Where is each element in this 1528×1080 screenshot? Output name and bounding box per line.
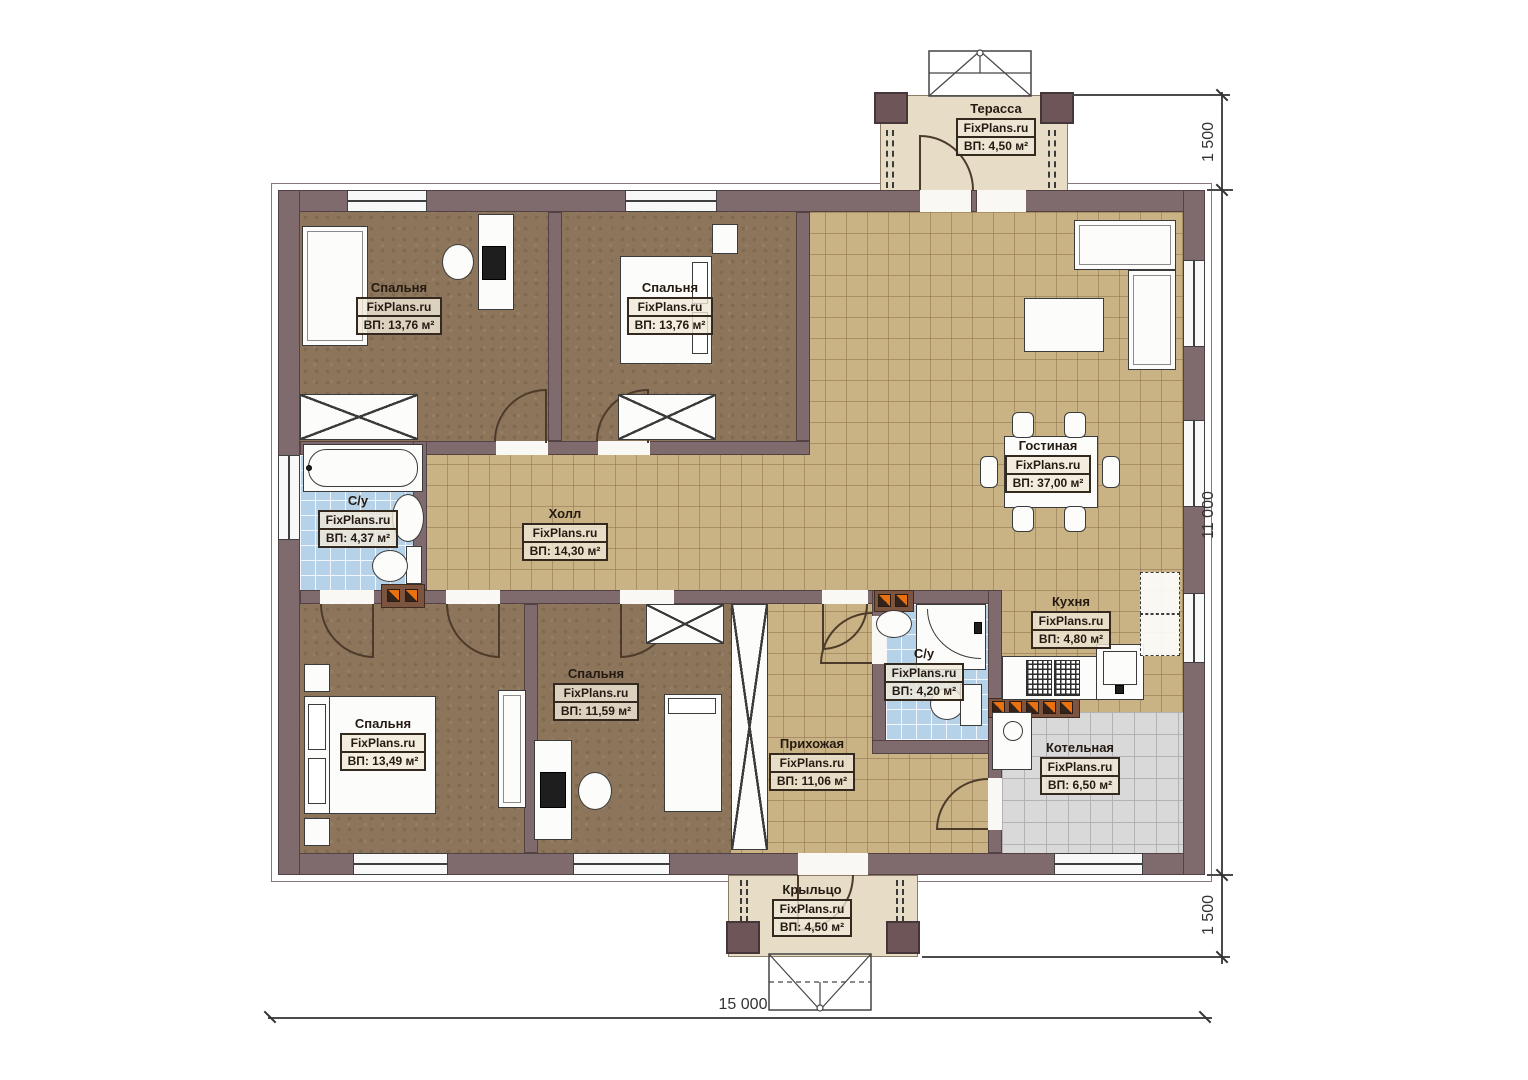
- wardrobe-symbol: [646, 604, 724, 644]
- room-name: Спальня: [568, 666, 624, 681]
- room-name: Холл: [549, 506, 582, 521]
- vent-marker-icon: [1043, 701, 1056, 714]
- door-leaf: [820, 662, 872, 664]
- closet-symbol: [731, 604, 768, 850]
- front-door-opening: [798, 853, 868, 875]
- room-label-boiler: Котельная FixPlans.ru ВП: 6,50 м²: [1010, 740, 1150, 795]
- shower-head-icon: [974, 622, 982, 634]
- chair-symbol: [1012, 506, 1034, 532]
- room-label-bath1: С/у FixPlans.ru ВП: 4,37 м²: [308, 493, 408, 548]
- wall-bedroom2-living: [796, 212, 810, 441]
- room-name: Кухня: [1052, 594, 1090, 609]
- room-label-porch: Крыльцо FixPlans.ru ВП: 4,50 м²: [752, 882, 872, 937]
- room-area: ВП: 13,49 м²: [342, 751, 425, 769]
- kitchen-sink-symbol: [1096, 644, 1144, 700]
- room-label-entry: Прихожая FixPlans.ru ВП: 11,06 м²: [752, 736, 872, 791]
- porch-railing: [896, 880, 904, 922]
- room-name: С/у: [348, 493, 368, 508]
- room-area: ВП: 4,37 м²: [320, 528, 397, 546]
- dimension-line-right: [1221, 92, 1223, 964]
- brand-watermark: FixPlans.ru: [342, 735, 425, 751]
- room-area: ВП: 4,80 м²: [1033, 629, 1110, 647]
- dimension-extension: [922, 956, 1230, 958]
- room-label-bedroom2: Спальня FixPlans.ru ВП: 13,76 м²: [605, 280, 735, 335]
- room-name: Спальня: [642, 280, 698, 295]
- faucet-icon: [306, 465, 312, 471]
- terrace-stairs-icon: [928, 50, 1032, 97]
- door-opening: [320, 590, 374, 604]
- dimension-value-porch-depth: 1 500: [1200, 880, 1220, 950]
- upper-cabinet-symbol: [1140, 572, 1180, 614]
- chair-symbol: [1064, 506, 1086, 532]
- window: [1054, 853, 1143, 875]
- floor-plan-canvas: Терасса FixPlans.ru ВП: 4,50 м² Спальня …: [0, 0, 1528, 1080]
- brand-watermark: FixPlans.ru: [629, 299, 712, 315]
- room-name: Котельная: [1046, 740, 1114, 755]
- dimension-value-house-depth: 11 000: [1200, 477, 1220, 553]
- door-leaf: [498, 604, 500, 658]
- room-name: Спальня: [371, 280, 427, 295]
- room-name: Крыльцо: [782, 882, 841, 897]
- dimension-extension: [1072, 94, 1230, 96]
- room-name: С/у: [914, 646, 934, 661]
- brand-watermark: FixPlans.ru: [886, 665, 963, 681]
- nightstand-symbol: [712, 224, 738, 254]
- nightstand-symbol: [304, 818, 330, 846]
- chair-symbol: [1012, 412, 1034, 438]
- room-name: Спальня: [355, 716, 411, 731]
- brand-watermark: FixPlans.ru: [555, 685, 637, 701]
- door-opening: [446, 590, 500, 604]
- dimension-value-terrace-depth: 1 500: [1200, 107, 1220, 177]
- upper-cabinet-symbol: [1140, 614, 1180, 656]
- room-area: ВП: 4,50 м²: [774, 917, 851, 935]
- dimension-line-bottom: [268, 1017, 1212, 1019]
- office-chair-symbol: [578, 772, 612, 810]
- window: [353, 853, 448, 875]
- room-area: ВП: 4,50 м²: [958, 136, 1035, 154]
- chair-symbol: [1064, 412, 1086, 438]
- coffee-table-symbol: [1024, 298, 1104, 352]
- vent-marker-icon: [387, 589, 400, 602]
- brand-watermark: FixPlans.ru: [958, 120, 1035, 136]
- door-leaf: [372, 604, 374, 658]
- vent-marker-icon: [878, 594, 891, 607]
- door-opening: [598, 441, 650, 455]
- nightstand-symbol: [304, 664, 330, 692]
- room-area: ВП: 37,00 м²: [1007, 473, 1090, 491]
- toilet-bowl-symbol: [372, 550, 408, 582]
- room-area: ВП: 11,59 м²: [555, 701, 637, 719]
- sofa-symbol: [1074, 220, 1176, 270]
- door-leaf: [936, 828, 988, 830]
- door-leaf: [545, 389, 547, 443]
- window: [573, 853, 670, 875]
- room-area: ВП: 13,76 м²: [358, 315, 441, 333]
- wardrobe-symbol: [618, 394, 716, 440]
- pillow-symbol: [668, 698, 716, 714]
- room-label-bedroom1: Спальня FixPlans.ru ВП: 13,76 м²: [334, 280, 464, 335]
- bathtub-symbol: [303, 444, 423, 492]
- washer-door-icon: [1003, 721, 1023, 741]
- terrace-post: [874, 92, 908, 124]
- room-name: Терасса: [970, 101, 1022, 116]
- porch-railing: [740, 880, 748, 922]
- office-chair-symbol: [442, 244, 474, 280]
- door-opening: [822, 590, 868, 604]
- vent-marker-icon: [405, 589, 418, 602]
- brand-watermark: FixPlans.ru: [320, 512, 397, 528]
- room-name: Прихожая: [780, 736, 844, 751]
- stove-symbol: [1026, 660, 1052, 696]
- brand-watermark: FixPlans.ru: [1033, 613, 1110, 629]
- room-area: ВП: 11,06 м²: [771, 771, 853, 789]
- brand-watermark: FixPlans.ru: [1042, 759, 1119, 775]
- room-area: ВП: 6,50 м²: [1042, 775, 1119, 793]
- brand-watermark: FixPlans.ru: [524, 525, 607, 541]
- dimension-value-house-width: 15 000: [688, 996, 798, 1014]
- computer-symbol: [540, 772, 566, 808]
- brand-watermark: FixPlans.ru: [358, 299, 441, 315]
- room-area: ВП: 14,30 м²: [524, 541, 607, 559]
- room-label-bath2: С/у FixPlans.ru ВП: 4,20 м²: [869, 646, 979, 701]
- door-leaf: [620, 604, 622, 658]
- faucet-icon: [1115, 685, 1124, 694]
- room-label-terrace: Терасса FixPlans.ru ВП: 4,50 м²: [931, 101, 1061, 156]
- sink-symbol: [876, 610, 912, 638]
- room-label-kitchen: Кухня FixPlans.ru ВП: 4,80 м²: [1011, 594, 1131, 649]
- wall-bedroom1-2: [548, 212, 562, 441]
- window: [625, 190, 717, 212]
- computer-symbol: [482, 246, 506, 280]
- sink-basin: [1103, 651, 1137, 685]
- room-area: ВП: 4,20 м²: [886, 681, 963, 699]
- door-opening: [620, 590, 674, 604]
- room-label-bedroom3: Спальня FixPlans.ru ВП: 13,49 м²: [318, 716, 448, 771]
- porch-post: [886, 921, 920, 954]
- window: [278, 455, 300, 540]
- wall-bath2-south: [872, 740, 1002, 754]
- room-area: ВП: 13,76 м²: [629, 315, 712, 333]
- window: [347, 190, 427, 212]
- stove-symbol: [1054, 660, 1080, 696]
- wardrobe-symbol: [300, 394, 418, 440]
- brand-watermark: FixPlans.ru: [1007, 457, 1090, 473]
- window: [1183, 593, 1205, 663]
- room-label-hall: Холл FixPlans.ru ВП: 14,30 м²: [500, 506, 630, 561]
- terrace-door-jamb: [971, 190, 977, 212]
- window: [1183, 260, 1205, 347]
- toilet-tank-symbol: [406, 546, 422, 584]
- brand-watermark: FixPlans.ru: [771, 755, 853, 771]
- vent-marker-icon: [895, 594, 908, 607]
- terrace-railing: [886, 130, 894, 188]
- dresser-symbol: [498, 690, 526, 808]
- door-opening: [988, 778, 1002, 830]
- room-label-bedroom4: Спальня FixPlans.ru ВП: 11,59 м²: [531, 666, 661, 721]
- vent-marker-icon: [1060, 701, 1073, 714]
- room-name: Гостиная: [1019, 438, 1078, 453]
- room-label-living: Гостиная FixPlans.ru ВП: 37,00 м²: [983, 438, 1113, 493]
- terrace-door-leaf: [919, 135, 921, 190]
- brand-watermark: FixPlans.ru: [774, 901, 851, 917]
- door-opening: [496, 441, 548, 455]
- sofa-symbol: [1128, 270, 1176, 370]
